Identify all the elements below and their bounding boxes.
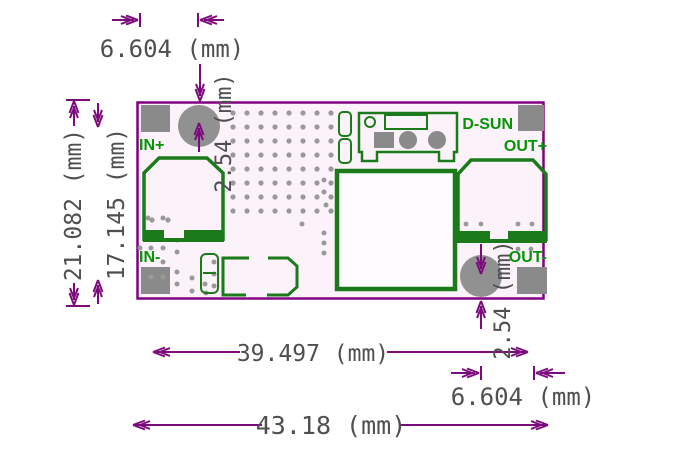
via-dot xyxy=(244,194,249,199)
via-dot xyxy=(244,152,249,157)
via-dot xyxy=(258,208,263,213)
via-dot xyxy=(300,194,305,199)
via-dot xyxy=(314,194,319,199)
label-out-plus: OUT+ xyxy=(504,138,547,155)
via-dot xyxy=(322,178,327,183)
via-dot xyxy=(286,110,291,115)
via-dot xyxy=(322,251,327,256)
via-dot xyxy=(258,194,263,199)
via-dot xyxy=(314,152,319,157)
via-dot xyxy=(272,180,277,185)
dim-top-hole-offset-x: 6.604 (mm) xyxy=(100,35,245,63)
via-dot xyxy=(328,110,333,115)
via-dot xyxy=(244,124,249,129)
via-dot xyxy=(300,222,305,227)
pad-in-plus xyxy=(141,105,170,132)
via-dot xyxy=(258,180,263,185)
label-brand: D-SUN xyxy=(462,116,513,133)
dim-bottom-hole-offset-x: 6.604 (mm) xyxy=(451,383,596,411)
via-dot xyxy=(322,241,327,246)
via-dot xyxy=(272,166,277,171)
via-dot xyxy=(328,194,333,199)
pad-out-minus xyxy=(517,267,547,294)
via-dot xyxy=(272,138,277,143)
via-dot xyxy=(328,138,333,143)
via-dot xyxy=(244,180,249,185)
via-dot xyxy=(190,289,195,294)
via-dot xyxy=(212,284,217,289)
via-dot xyxy=(161,246,166,251)
via-dot xyxy=(272,110,277,115)
dim-board-height: 21.082 (mm) xyxy=(61,129,87,281)
via-dot xyxy=(286,138,291,143)
via-dot xyxy=(175,250,180,255)
via-dot xyxy=(230,208,235,213)
drawing-svg: IN+ IN- OUT+ OUT- D-SUN xyxy=(0,0,691,465)
via-dot xyxy=(300,180,305,185)
label-in-plus: IN+ xyxy=(139,137,164,154)
via-dot xyxy=(300,166,305,171)
via-dot xyxy=(161,216,166,221)
via-dot xyxy=(286,124,291,129)
via-dot xyxy=(328,124,333,129)
via-dot xyxy=(286,180,291,185)
dim-bottom-hole-offset-y: 2.54 (mm) xyxy=(491,240,516,359)
via-dot xyxy=(314,124,319,129)
via-dot xyxy=(230,194,235,199)
label-in-minus: IN- xyxy=(139,249,160,266)
via-dot xyxy=(212,260,217,265)
via-dot xyxy=(300,110,305,115)
via-dot xyxy=(272,194,277,199)
pad-in-minus xyxy=(141,267,170,294)
via-dot xyxy=(244,138,249,143)
via-dot xyxy=(161,260,166,265)
via-dot xyxy=(328,208,333,213)
via-dot xyxy=(286,208,291,213)
via-dot xyxy=(328,152,333,157)
via-dot xyxy=(328,166,333,171)
via-dot xyxy=(314,180,319,185)
dim-pad-column-pitch: 39.497 (mm) xyxy=(237,341,389,367)
via-dot xyxy=(272,124,277,129)
via-dot xyxy=(314,110,319,115)
via-dot xyxy=(175,270,180,275)
via-dot xyxy=(258,138,263,143)
via-dot xyxy=(314,166,319,171)
via-dot xyxy=(244,166,249,171)
via-dot xyxy=(324,203,329,208)
via-dot xyxy=(300,124,305,129)
dim-pad-row-pitch: 17.145 (mm) xyxy=(104,128,130,280)
via-dot xyxy=(258,110,263,115)
via-dot xyxy=(300,152,305,157)
via-dot xyxy=(203,282,208,287)
via-dot xyxy=(286,152,291,157)
pad-out-plus xyxy=(518,105,544,131)
via-dot xyxy=(286,194,291,199)
via-dot xyxy=(300,208,305,213)
pcb-dimension-drawing: IN+ IN- OUT+ OUT- D-SUN xyxy=(0,0,691,465)
via-dot xyxy=(258,166,263,171)
dim-top-hole-offset-y: 2.54 (mm) xyxy=(212,73,237,192)
via-dot xyxy=(175,282,180,287)
via-dot xyxy=(328,180,333,185)
ic-outline xyxy=(337,171,455,289)
via-dot xyxy=(272,152,277,157)
via-dot xyxy=(322,231,327,236)
via-dot xyxy=(286,166,291,171)
via-dot xyxy=(244,110,249,115)
via-dot xyxy=(190,276,195,281)
via-dot xyxy=(258,124,263,129)
via-dot xyxy=(161,275,166,280)
via-dot xyxy=(244,208,249,213)
via-dot xyxy=(300,138,305,143)
via-dot xyxy=(149,275,154,280)
via-dot xyxy=(322,190,327,195)
via-dot xyxy=(272,208,277,213)
dim-board-width: 43.18 (mm) xyxy=(256,411,407,440)
via-dot xyxy=(258,152,263,157)
via-dot xyxy=(314,208,319,213)
via-dot xyxy=(314,138,319,143)
